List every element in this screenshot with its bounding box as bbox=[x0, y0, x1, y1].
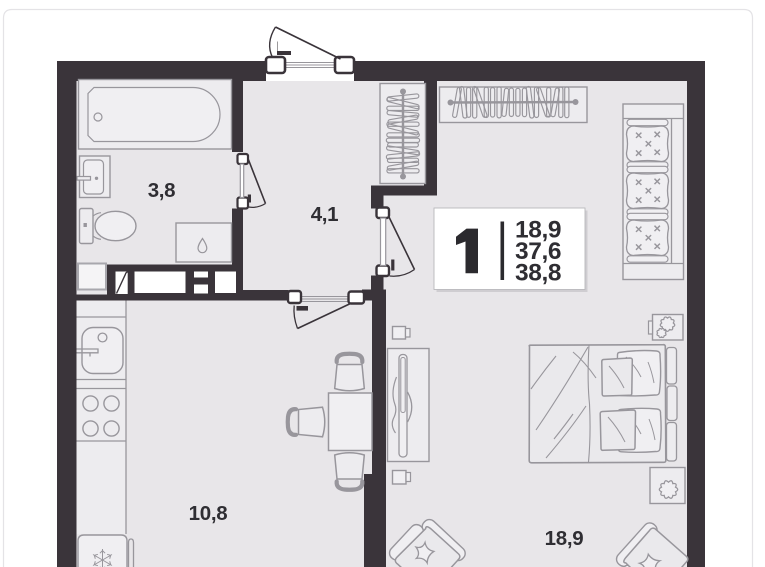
svg-text:3,8: 3,8 bbox=[148, 179, 176, 202]
svg-text:4,1: 4,1 bbox=[311, 203, 339, 226]
svg-text:10,8: 10,8 bbox=[189, 502, 228, 525]
svg-text:18,9: 18,9 bbox=[545, 527, 584, 550]
svg-text:38,8: 38,8 bbox=[515, 260, 561, 287]
